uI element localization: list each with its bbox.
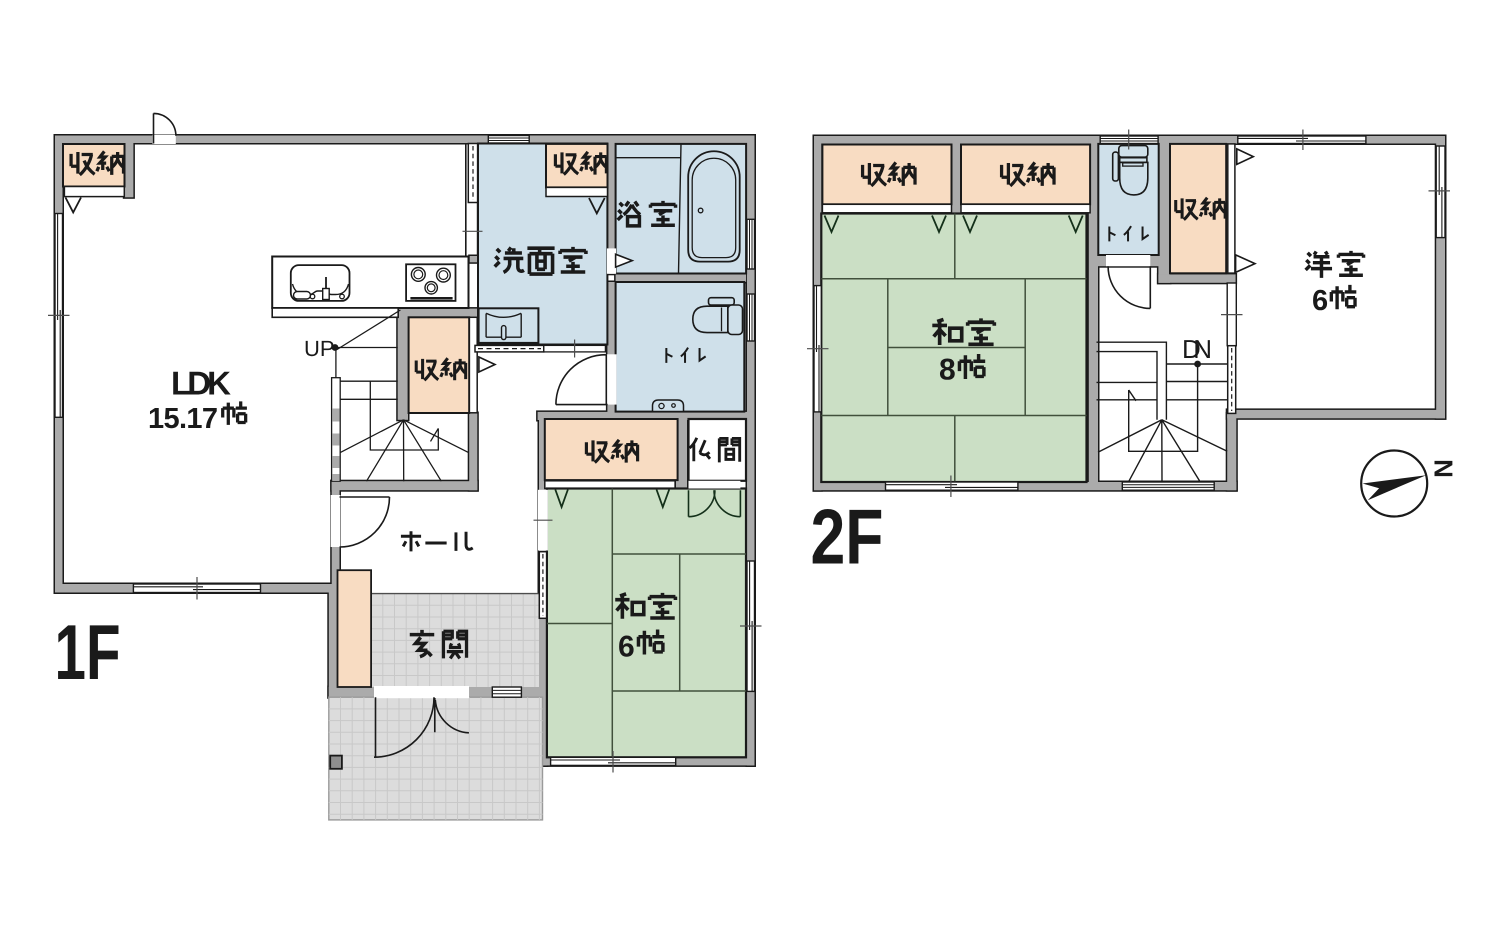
svg-text:6: 6 [1312, 285, 1328, 317]
svg-text:N: N [1429, 459, 1459, 478]
svg-text:15.17: 15.17 [148, 403, 218, 435]
svg-text:LDK: LDK [171, 365, 231, 402]
svg-text:2F: 2F [811, 493, 884, 581]
svg-text:UP: UP [304, 336, 335, 361]
svg-text:6: 6 [618, 631, 635, 664]
svg-text:1F: 1F [55, 608, 121, 696]
svg-text:DN: DN [1182, 334, 1212, 364]
svg-text:8: 8 [939, 354, 956, 387]
